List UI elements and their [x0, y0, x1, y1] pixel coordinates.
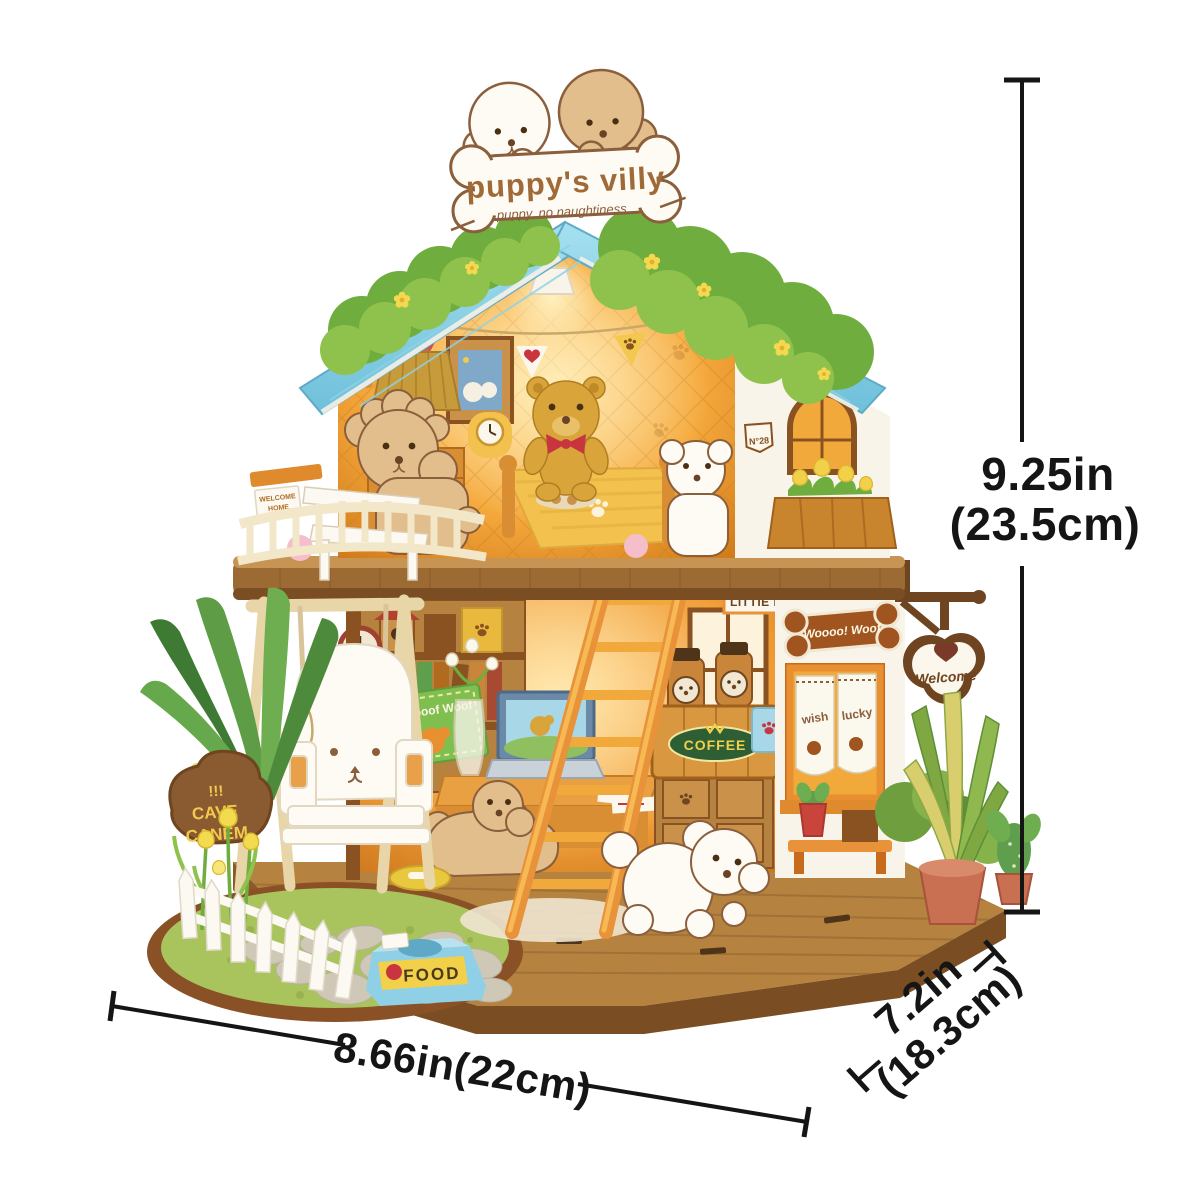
- yellow-clock: [468, 412, 512, 458]
- welcome-hanging-sign: Welcome: [895, 590, 986, 704]
- running-bichon-cutout: [602, 821, 769, 938]
- bone-plaque: puppy's villy puppy, no naughtiness...: [447, 135, 687, 233]
- curtain-right: lucky: [838, 674, 876, 773]
- coffee-label: COFFEE: [684, 737, 747, 753]
- curtain-left: wish: [796, 676, 834, 775]
- cave-canem-rock: !!! CAVE CANEM: [170, 751, 272, 846]
- house-number-text: N°28: [749, 435, 770, 446]
- brown-box: [842, 810, 878, 842]
- rock-marks: !!!: [208, 782, 224, 800]
- shelf-box: [424, 614, 456, 652]
- height-cm-text: (23.5cm): [950, 498, 1141, 550]
- bone-dish: [390, 866, 450, 890]
- pink-pompom: [624, 534, 648, 558]
- laptop: [486, 692, 604, 778]
- title-sign: puppy's villy puppy, no naughtiness...: [443, 66, 687, 233]
- food-text: FOOD: [403, 964, 461, 986]
- width-text: 8.66in(22cm): [330, 1023, 595, 1112]
- floor-divider: [233, 556, 905, 600]
- height-in-text: 9.25in: [981, 448, 1114, 500]
- product-photo: Woooof Woof: [0, 0, 1200, 1200]
- dollhouse-illustration: Woooof Woof: [0, 0, 1200, 1200]
